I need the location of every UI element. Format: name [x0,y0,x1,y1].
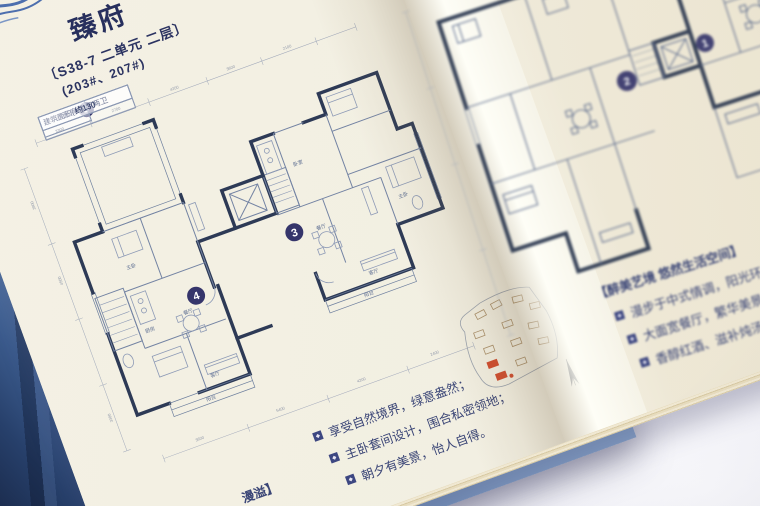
square-bullet-icon [614,310,625,321]
sky-garden [73,120,184,232]
unit-4-marker: 4 [185,284,208,307]
core-elevator [222,167,300,228]
svg-text:餐厅: 餐厅 [315,222,327,232]
svg-text:5400: 5400 [275,405,286,413]
svg-text:3600: 3600 [226,64,237,72]
square-bullet-icon [639,357,650,368]
svg-text:3300: 3300 [55,126,66,134]
svg-text:4200: 4200 [169,84,180,92]
square-bullet-icon [312,430,324,442]
square-bullet-icon [345,474,357,486]
unit-4-walls [73,189,289,429]
svg-text:4200: 4200 [356,376,367,384]
svg-text:主卧: 主卧 [125,262,137,272]
photo-of-brochure: 臻府 〔S38-7 二单元 二层〕 (203#、207#) 编码 4 3 户型 … [0,0,760,506]
unit-1-walls [664,0,760,178]
svg-text:客厅: 客厅 [209,369,221,379]
svg-text:卧室: 卧室 [292,158,304,168]
square-bullet-icon [626,333,637,344]
svg-text:2100: 2100 [282,43,293,51]
square-bullet-icon [329,452,341,464]
section-header-fragment: 漫溢】 [239,476,281,506]
brand-logo [0,0,70,53]
core-elevator [629,31,701,85]
svg-text:4500: 4500 [56,275,64,286]
unit-3-marker: 3 [283,221,306,244]
svg-text:3900: 3900 [29,200,37,211]
svg-text:3600: 3600 [195,434,206,442]
svg-text:3300: 3300 [106,412,114,423]
svg-text:2700: 2700 [111,105,122,113]
unit-2-walls [430,0,688,289]
svg-text:厨房: 厨房 [144,325,156,335]
open-spread: 臻府 〔S38-7 二单元 二层〕 (203#、207#) 编码 4 3 户型 … [0,0,760,506]
